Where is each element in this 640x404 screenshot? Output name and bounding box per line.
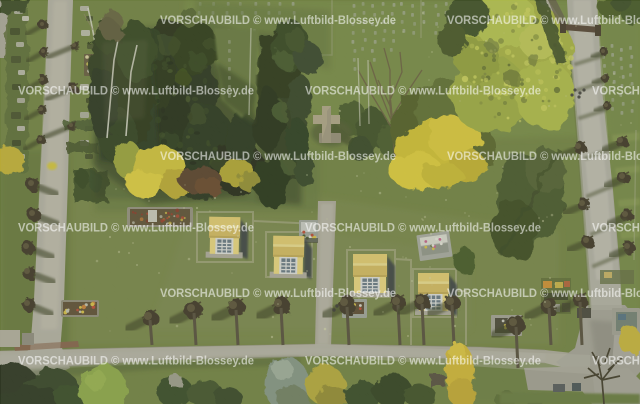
svg-text:VORSCHAUBILD © www.Luftbild-Bl: VORSCHAUBILD © www.Luftbild-Blossey.de <box>592 221 640 235</box>
svg-text:VORSCHAUBILD © www.Luftbild-Bl: VORSCHAUBILD © www.Luftbild-Blossey.de <box>18 354 254 368</box>
svg-text:VORSCHAUBILD © www.Luftbild-Bl: VORSCHAUBILD © www.Luftbild-Blossey.de <box>305 84 541 98</box>
svg-text:VORSCHAUBILD © www.Luftbild-Bl: VORSCHAUBILD © www.Luftbild-Blossey.de <box>18 84 254 98</box>
svg-text:VORSCHAUBILD © www.Luftbild-Bl: VORSCHAUBILD © www.Luftbild-Blossey.de <box>447 286 640 300</box>
svg-text:VORSCHAUBILD © www.Luftbild-Bl: VORSCHAUBILD © www.Luftbild-Blossey.de <box>305 221 541 235</box>
svg-text:VORSCHAUBILD © www.Luftbild-Bl: VORSCHAUBILD © www.Luftbild-Blossey.de <box>18 221 254 235</box>
svg-text:VORSCHAUBILD © www.Luftbild-Bl: VORSCHAUBILD © www.Luftbild-Blossey.de <box>447 13 640 27</box>
svg-text:VORSCHAUBILD © www.Luftbild-Bl: VORSCHAUBILD © www.Luftbild-Blossey.de <box>305 354 541 368</box>
svg-text:VORSCHAUBILD © www.Luftbild-Bl: VORSCHAUBILD © www.Luftbild-Blossey.de <box>160 13 396 27</box>
svg-text:VORSCHAUBILD © www.Luftbild-Bl: VORSCHAUBILD © www.Luftbild-Blossey.de <box>447 149 640 163</box>
svg-text:VORSCHAUBILD © www.Luftbild-Bl: VORSCHAUBILD © www.Luftbild-Blossey.de <box>592 84 640 98</box>
svg-text:VORSCHAUBILD © www.Luftbild-Bl: VORSCHAUBILD © www.Luftbild-Blossey.de <box>160 149 396 163</box>
svg-text:VORSCHAUBILD © www.Luftbild-Bl: VORSCHAUBILD © www.Luftbild-Blossey.de <box>592 354 640 368</box>
svg-text:VORSCHAUBILD © www.Luftbild-Bl: VORSCHAUBILD © www.Luftbild-Blossey.de <box>160 286 396 300</box>
